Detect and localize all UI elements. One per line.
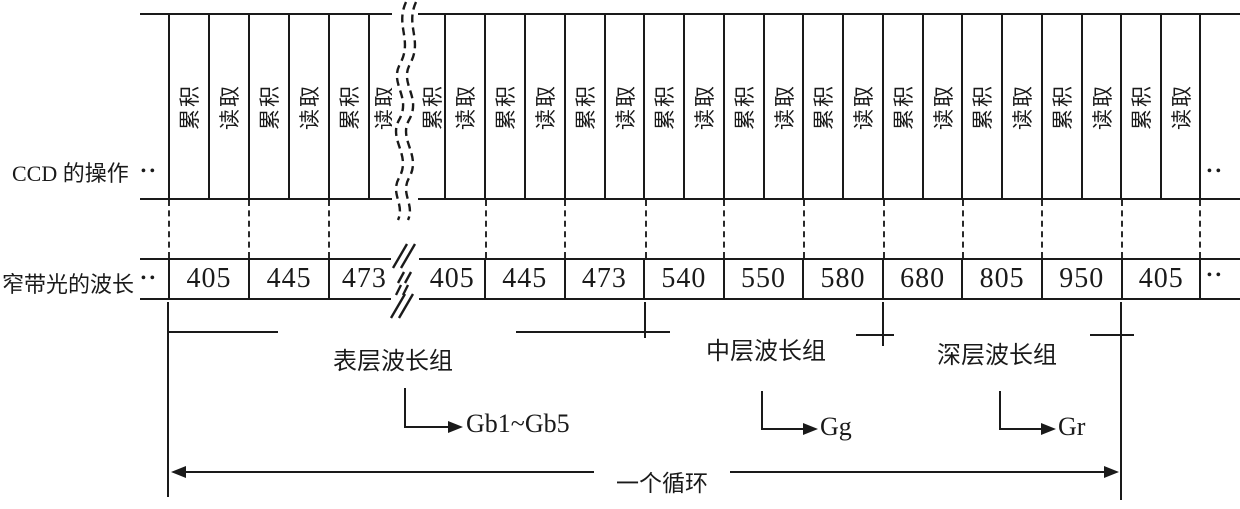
band-connector-dashed-line	[883, 200, 885, 258]
ccd-cell-label: 读取	[530, 84, 560, 130]
ccd-cell-label: 读取	[610, 84, 640, 130]
ccd-row-left-continuation-dots: ••	[141, 164, 159, 180]
wavelength-cell: 580	[802, 258, 882, 300]
signal-gg-elbow-horizontal	[761, 428, 805, 430]
wavelength-cell-label: 540	[661, 263, 706, 295]
ccd-cell-label: 读取	[294, 84, 324, 130]
wavelength-cell-label: 445	[267, 263, 312, 295]
ccd-cell-label: 读取	[1166, 84, 1196, 130]
wavelength-cell-label: 405	[1139, 263, 1184, 295]
ccd-cell: 读取	[842, 13, 882, 200]
ccd-cell-label: 读取	[214, 84, 244, 130]
ccd-cell: 累积	[328, 13, 368, 200]
wavelength-cell-label: 805	[980, 263, 1025, 295]
surface-wavelength-group-label: 表层波长组	[333, 341, 453, 376]
ccd-cell-label: 累积	[1126, 84, 1156, 130]
cycle-arrow-right-segment	[730, 471, 1106, 473]
ccd-cell: 读取	[922, 13, 962, 200]
middle-deep-group-lead	[856, 334, 894, 336]
cycle-arrow-left-segment	[184, 471, 594, 473]
ccd-cell: 读取	[288, 13, 328, 200]
ccd-band-break-zigzag	[383, 0, 433, 222]
deep-wavelength-group-label: 深层波长组	[937, 335, 1057, 370]
ccd-cell: 读取	[683, 13, 723, 200]
signal-gb-label: Gb1~Gb5	[466, 409, 570, 439]
band-connector-dashed-line	[328, 200, 330, 258]
cycle-arrowhead-right-icon	[1104, 466, 1119, 478]
ccd-cell: 累积	[643, 13, 683, 200]
ccd-cell-label: 累积	[888, 84, 918, 130]
ccd-cell: 累积	[248, 13, 288, 200]
wavelength-cell: 405	[168, 258, 248, 300]
band-connector-dashed-line	[485, 200, 487, 258]
ccd-cell-label: 读取	[689, 84, 719, 130]
wavelength-cell-label: 680	[900, 263, 945, 295]
ccd-cell-label: 读取	[928, 84, 958, 130]
ccd-cell-label: 累积	[570, 84, 600, 130]
ccd-cell-label: 累积	[334, 84, 364, 130]
surface-group-right-lead	[516, 331, 670, 333]
cycle-label: 一个循环	[616, 464, 708, 498]
wavelength-row-right-continuation-dots: ••	[1207, 268, 1225, 284]
ccd-cell: 累积	[802, 13, 842, 200]
wavelength-cell: 445	[484, 258, 564, 300]
wavelength-row-label: 窄带光的波长	[2, 267, 134, 299]
signal-gr-arrowhead-icon	[1041, 423, 1056, 435]
signal-gg-elbow-vertical	[761, 391, 763, 430]
ccd-cell: 累积	[1041, 13, 1081, 200]
band-connector-dashed-line	[168, 200, 170, 258]
ccd-cell: 读取	[524, 13, 564, 200]
band-connector-dashed-line	[1041, 200, 1043, 258]
ccd-band-end-border	[1199, 13, 1201, 200]
wavelength-cell-label: 550	[741, 263, 786, 295]
band-connector-dashed-line	[645, 200, 647, 258]
ccd-cell: 读取	[763, 13, 803, 200]
wavelength-cell-label: 445	[502, 263, 547, 295]
wavelength-cell: 950	[1041, 258, 1121, 300]
ccd-cell: 累积	[723, 13, 763, 200]
ccd-cell-label: 读取	[769, 84, 799, 130]
signal-gr-label: Gr	[1058, 412, 1085, 442]
ccd-cell-label: 累积	[808, 84, 838, 130]
wavelength-cell: 680	[882, 258, 962, 300]
wavelength-cell-label: 580	[821, 263, 866, 295]
signal-gg-label: Gg	[820, 412, 852, 442]
wavelength-cell: 405	[1121, 258, 1201, 300]
signal-gr-elbow-horizontal	[999, 428, 1043, 430]
wavelength-cell: 473	[564, 258, 644, 300]
wavelength-cell-label: 405	[430, 263, 475, 295]
ccd-cell: 读取	[208, 13, 248, 200]
ccd-row-right-continuation-dots: ••	[1207, 164, 1225, 180]
wavelength-cell: 805	[961, 258, 1041, 300]
band-connector-dashed-line	[1121, 200, 1123, 258]
ccd-timing-diagram: 累积读取累积读取累积读取累积读取累积读取累积读取累积读取累积读取累积读取累积读取…	[0, 0, 1240, 509]
ccd-cell: 累积	[1120, 13, 1160, 200]
ccd-cell-label: 读取	[848, 84, 878, 130]
wavelength-band-break	[383, 242, 433, 322]
signal-gg-arrowhead-icon	[803, 423, 818, 435]
ccd-cell-label: 读取	[1087, 84, 1117, 130]
deep-group-right-lead	[1090, 334, 1134, 336]
signal-gr-elbow-vertical	[999, 391, 1001, 430]
cycle-right-terminal-line	[1120, 302, 1122, 500]
ccd-cell: 累积	[564, 13, 604, 200]
signal-gb-elbow-vertical	[404, 388, 406, 428]
signal-gb-elbow-horizontal	[404, 426, 450, 428]
ccd-cell: 读取	[1160, 13, 1200, 200]
band-connector-dashed-line	[248, 200, 250, 258]
ccd-cell: 读取	[1001, 13, 1041, 200]
ccd-cell-label: 累积	[649, 84, 679, 130]
ccd-cell-label: 累积	[967, 84, 997, 130]
wavelength-cell-label: 405	[187, 263, 232, 295]
ccd-cell: 读取	[444, 13, 484, 200]
ccd-cell-label: 累积	[174, 84, 204, 130]
wavelength-cell-label: 950	[1059, 263, 1104, 295]
ccd-cell-label: 累积	[490, 84, 520, 130]
ccd-cell-label: 读取	[450, 84, 480, 130]
wavelength-cell-label: 473	[582, 263, 627, 295]
ccd-cell-label: 累积	[1047, 84, 1077, 130]
wavelength-cell: 445	[248, 258, 328, 300]
ccd-cell: 累积	[961, 13, 1001, 200]
band-connector-dashed-line	[803, 200, 805, 258]
band-connector-dashed-line	[1199, 200, 1201, 258]
ccd-row-label: CCD 的操作	[12, 156, 129, 188]
band-connector-dashed-line	[962, 200, 964, 258]
ccd-cell: 读取	[1081, 13, 1121, 200]
wavelength-cell: 550	[723, 258, 803, 300]
wavelength-cells-row: 405445473405445473540550580680805950405	[168, 258, 1200, 300]
ccd-cell: 累积	[484, 13, 524, 200]
ccd-cell: 累积	[882, 13, 922, 200]
wavelength-cell: 540	[643, 258, 723, 300]
group-boundary-middle-deep	[882, 302, 884, 346]
ccd-cell: 读取	[604, 13, 644, 200]
middle-wavelength-group-label: 中层波长组	[706, 331, 826, 366]
ccd-cell-label: 累积	[729, 84, 759, 130]
ccd-cells-row: 累积读取累积读取累积读取累积读取累积读取累积读取累积读取累积读取累积读取累积读取…	[168, 13, 1200, 200]
band-connector-dashed-line	[564, 200, 566, 258]
wavelength-cell-label: 473	[342, 263, 387, 295]
ccd-cell-label: 读取	[1007, 84, 1037, 130]
wavelength-band-end-border	[1199, 258, 1201, 300]
signal-gb-arrowhead-icon	[448, 421, 463, 433]
ccd-cell-label: 累积	[254, 84, 284, 130]
wavelength-row-left-continuation-dots: ••	[141, 271, 159, 287]
surface-group-left-lead	[168, 331, 278, 333]
ccd-cell: 累积	[168, 13, 208, 200]
band-connector-dashed-line	[723, 200, 725, 258]
